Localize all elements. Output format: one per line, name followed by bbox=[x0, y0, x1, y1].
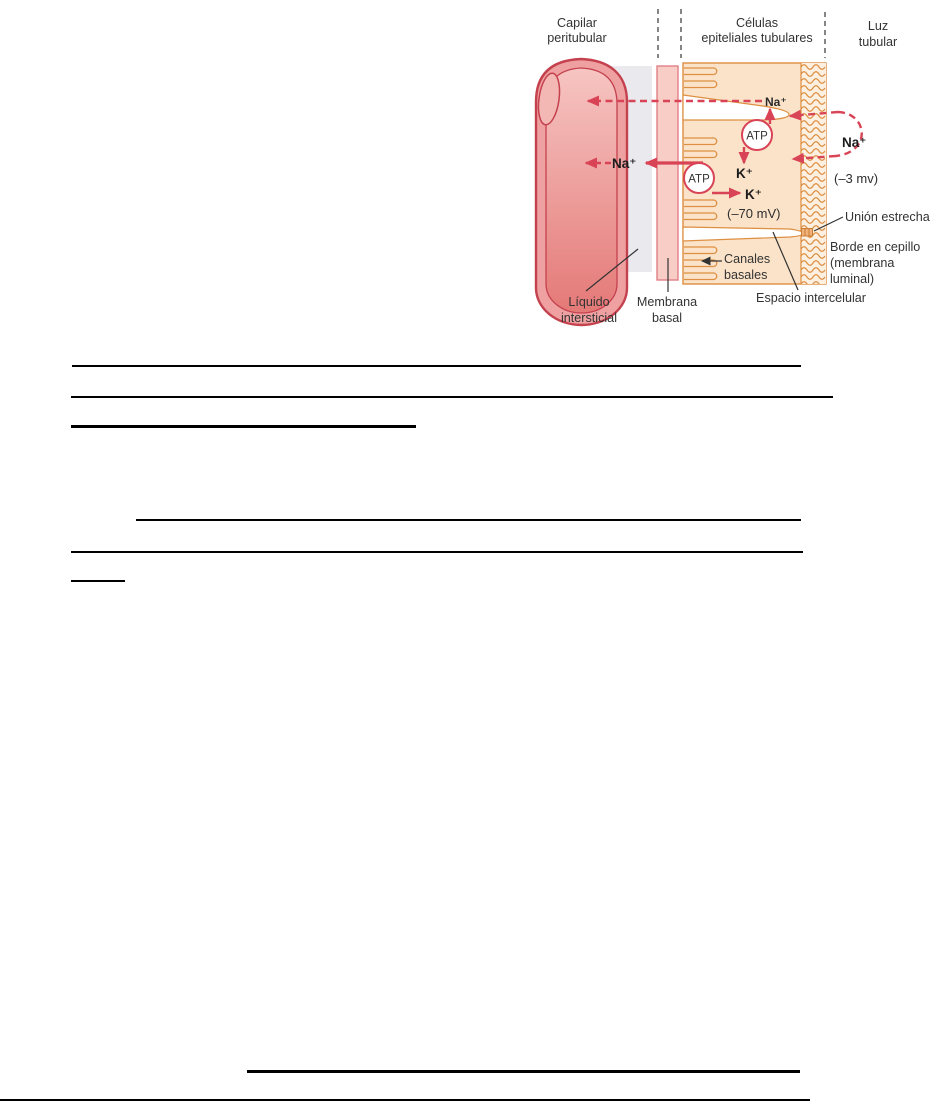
bottom-rule bbox=[0, 1099, 810, 1101]
blank-line-7 bbox=[247, 1070, 800, 1073]
header-cells-line1: Células bbox=[736, 16, 778, 30]
tight-junction bbox=[802, 229, 813, 237]
na-label-top: Na⁺ bbox=[765, 95, 787, 109]
header-lumen-line2: tubular bbox=[859, 35, 898, 49]
potential-lumen-label: (–3 mv) bbox=[834, 171, 878, 186]
atp-pump-lower: ATP bbox=[684, 163, 714, 193]
blank-line-6 bbox=[71, 580, 125, 582]
tight-junction-label: Unión estrecha bbox=[845, 210, 930, 224]
blank-line-1 bbox=[72, 365, 801, 367]
atp-pump-upper: ATP bbox=[742, 120, 772, 150]
header-cells-line2: epiteliales tubulares bbox=[701, 31, 812, 45]
header-capillary-line1: Capilar bbox=[557, 16, 597, 30]
intercellular-label: Espacio intercelular bbox=[756, 291, 866, 305]
peritubular-capillary bbox=[535, 59, 627, 325]
interstitial-label-line2: intersticial bbox=[561, 311, 617, 325]
k-label-lower: K⁺ bbox=[745, 187, 762, 202]
atp-label-lower: ATP bbox=[688, 174, 710, 186]
header-lumen-line1: Luz bbox=[868, 19, 888, 33]
blank-line-2 bbox=[71, 396, 833, 398]
blank-line-5 bbox=[71, 551, 803, 553]
potential-cell-label: (–70 mV) bbox=[727, 206, 780, 221]
basal-channels-label-line1: Canales bbox=[724, 252, 770, 266]
brush-border-label-line2: (membrana bbox=[830, 256, 894, 270]
basement-membrane-bar bbox=[657, 66, 678, 280]
blank-line-4 bbox=[136, 519, 801, 521]
brush-border-label-line1: Borde en cepillo bbox=[830, 240, 920, 254]
na-label-left: Na⁺ bbox=[612, 156, 636, 171]
figure-sodium-reabsorption-diagram: Capilar peritubular Células epiteliales … bbox=[0, 0, 948, 340]
header-capillary-line2: peritubular bbox=[547, 31, 607, 45]
basement-label-line1: Membrana bbox=[637, 295, 697, 309]
atp-label-upper: ATP bbox=[746, 131, 768, 143]
basal-channels-label-line2: basales bbox=[724, 268, 767, 282]
interstitial-label-line1: Líquido bbox=[568, 295, 609, 309]
basement-label-line2: basal bbox=[652, 311, 682, 325]
na-label-lumen: Na⁺ bbox=[842, 135, 866, 150]
document-page: Capilar peritubular Células epiteliales … bbox=[0, 0, 948, 1104]
blank-line-3 bbox=[71, 425, 416, 428]
k-label-upper: K⁺ bbox=[736, 166, 753, 181]
brush-border-label-line3: luminal) bbox=[830, 272, 874, 286]
